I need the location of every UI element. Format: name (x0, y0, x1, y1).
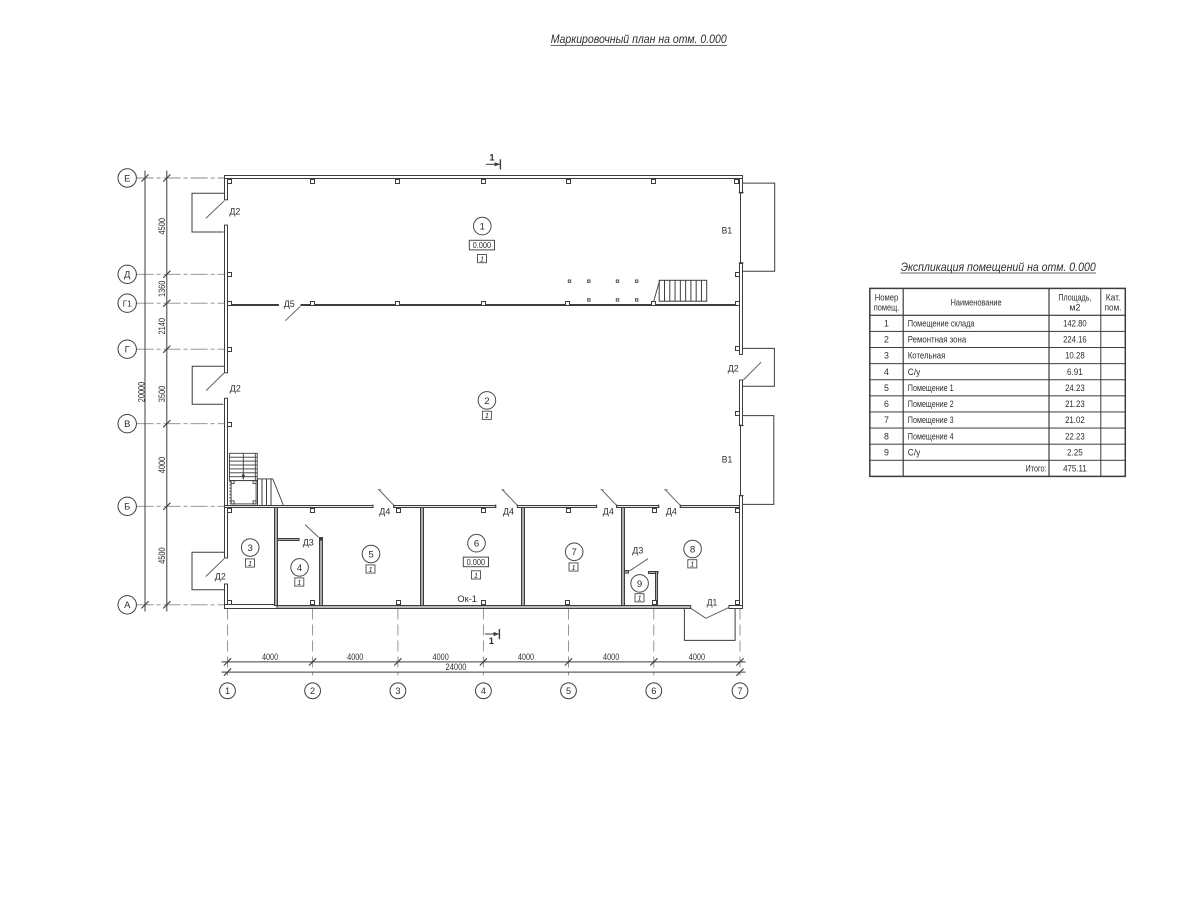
svg-text:2: 2 (484, 396, 489, 407)
svg-text:224.16: 224.16 (1063, 335, 1087, 345)
svg-text:Наименование: Наименование (951, 297, 1002, 307)
svg-text:м2: м2 (1069, 302, 1080, 312)
svg-text:6: 6 (474, 539, 479, 550)
svg-text:1: 1 (368, 565, 372, 574)
svg-text:2140: 2140 (157, 318, 167, 335)
svg-text:4000: 4000 (518, 652, 534, 662)
svg-text:Д2: Д2 (215, 571, 226, 581)
svg-text:С/у: С/у (908, 447, 921, 457)
svg-text:4500: 4500 (157, 218, 167, 235)
svg-text:Ремонтная зона: Ремонтная зона (908, 335, 966, 345)
svg-text:4000: 4000 (347, 652, 363, 662)
svg-text:8: 8 (690, 544, 695, 555)
svg-text:Помещение 2: Помещение 2 (908, 399, 954, 409)
svg-text:пом.: пом. (1105, 302, 1122, 312)
svg-text:9: 9 (884, 447, 889, 457)
svg-text:4: 4 (297, 563, 303, 574)
svg-text:3500: 3500 (157, 386, 167, 403)
svg-text:1: 1 (225, 686, 230, 696)
svg-text:21.02: 21.02 (1065, 415, 1085, 425)
svg-text:0.000: 0.000 (473, 240, 492, 250)
svg-text:1: 1 (480, 255, 484, 264)
svg-text:С/у: С/у (908, 367, 921, 377)
svg-text:помещ.: помещ. (874, 302, 900, 312)
svg-text:4000: 4000 (262, 652, 278, 662)
svg-text:1: 1 (248, 559, 252, 568)
svg-text:1: 1 (489, 635, 494, 646)
svg-text:1: 1 (474, 571, 478, 580)
svg-text:1: 1 (480, 222, 485, 233)
svg-text:Д4: Д4 (603, 507, 614, 517)
svg-text:1: 1 (571, 563, 575, 572)
svg-text:2.25: 2.25 (1067, 447, 1083, 457)
svg-text:1: 1 (489, 151, 494, 162)
svg-text:9: 9 (637, 579, 642, 590)
svg-text:4000: 4000 (689, 652, 705, 662)
svg-text:1: 1 (690, 560, 694, 569)
svg-text:2: 2 (310, 686, 315, 696)
svg-text:Д2: Д2 (229, 206, 240, 216)
svg-text:4500: 4500 (157, 547, 167, 564)
svg-text:3: 3 (395, 686, 400, 696)
svg-text:В1: В1 (722, 225, 733, 235)
svg-text:5: 5 (566, 686, 571, 696)
svg-text:24000: 24000 (446, 662, 467, 672)
svg-text:Ок-1: Ок-1 (457, 594, 477, 604)
svg-text:Помещение 1: Помещение 1 (908, 383, 954, 393)
svg-text:4000: 4000 (157, 457, 167, 474)
svg-text:3: 3 (248, 543, 253, 554)
svg-text:6.91: 6.91 (1067, 367, 1083, 377)
svg-text:Д4: Д4 (379, 507, 390, 517)
svg-text:7: 7 (884, 415, 889, 425)
svg-text:4000: 4000 (603, 652, 619, 662)
svg-text:В: В (124, 418, 130, 429)
svg-text:А: А (124, 599, 131, 610)
svg-text:1: 1 (485, 411, 489, 420)
svg-text:7: 7 (737, 686, 742, 696)
svg-text:Помещение 3: Помещение 3 (908, 415, 954, 425)
svg-text:Д4: Д4 (503, 507, 514, 517)
svg-text:Е: Е (124, 172, 130, 183)
svg-text:Экспликация помещений на отм.: Экспликация помещений на отм. 0.000 (901, 260, 1096, 274)
svg-text:3: 3 (884, 351, 889, 361)
svg-text:1: 1 (884, 319, 889, 329)
svg-text:24.23: 24.23 (1065, 383, 1085, 393)
svg-text:7: 7 (572, 547, 577, 558)
svg-text:Д: Д (124, 269, 131, 280)
svg-text:1: 1 (637, 594, 641, 603)
svg-text:Д3: Д3 (632, 546, 643, 556)
svg-text:Г: Г (125, 344, 130, 355)
svg-text:4000: 4000 (433, 652, 449, 662)
svg-text:Кат.: Кат. (1106, 292, 1121, 302)
svg-text:Д5: Д5 (284, 299, 295, 309)
svg-text:0.000: 0.000 (467, 557, 486, 567)
svg-text:4: 4 (884, 367, 889, 377)
svg-text:1360: 1360 (157, 281, 167, 298)
svg-text:Д2: Д2 (728, 363, 739, 373)
svg-text:Г1: Г1 (123, 300, 132, 309)
svg-text:10.28: 10.28 (1065, 351, 1085, 361)
svg-text:5: 5 (884, 383, 889, 393)
svg-text:Котельная: Котельная (908, 351, 946, 361)
svg-text:21.23: 21.23 (1065, 399, 1085, 409)
svg-text:В1: В1 (722, 454, 733, 464)
svg-text:22.23: 22.23 (1065, 431, 1085, 441)
svg-text:Б: Б (124, 501, 130, 512)
svg-text:Итого:: Итого: (1026, 463, 1047, 473)
svg-text:Маркировочный план на отм. 0.0: Маркировочный план на отм. 0.000 (551, 32, 727, 46)
svg-text:Помещение 4: Помещение 4 (908, 431, 954, 441)
svg-text:142.80: 142.80 (1063, 319, 1087, 329)
svg-text:20000: 20000 (136, 382, 146, 403)
svg-text:Д4: Д4 (666, 507, 677, 517)
svg-text:2: 2 (884, 335, 889, 345)
svg-text:5: 5 (368, 549, 373, 560)
svg-text:Номер: Номер (875, 292, 899, 302)
svg-text:Д2: Д2 (230, 384, 241, 394)
svg-text:Д1: Д1 (707, 597, 718, 607)
svg-text:Д3: Д3 (303, 537, 314, 547)
svg-text:4: 4 (481, 686, 486, 696)
svg-text:Помещение склада: Помещение склада (908, 319, 975, 329)
svg-text:1: 1 (297, 578, 301, 587)
svg-text:Площадь,: Площадь, (1058, 292, 1091, 302)
svg-text:6: 6 (651, 686, 656, 696)
svg-text:475.11: 475.11 (1063, 463, 1087, 473)
svg-text:8: 8 (884, 431, 889, 441)
svg-text:6: 6 (884, 399, 889, 409)
